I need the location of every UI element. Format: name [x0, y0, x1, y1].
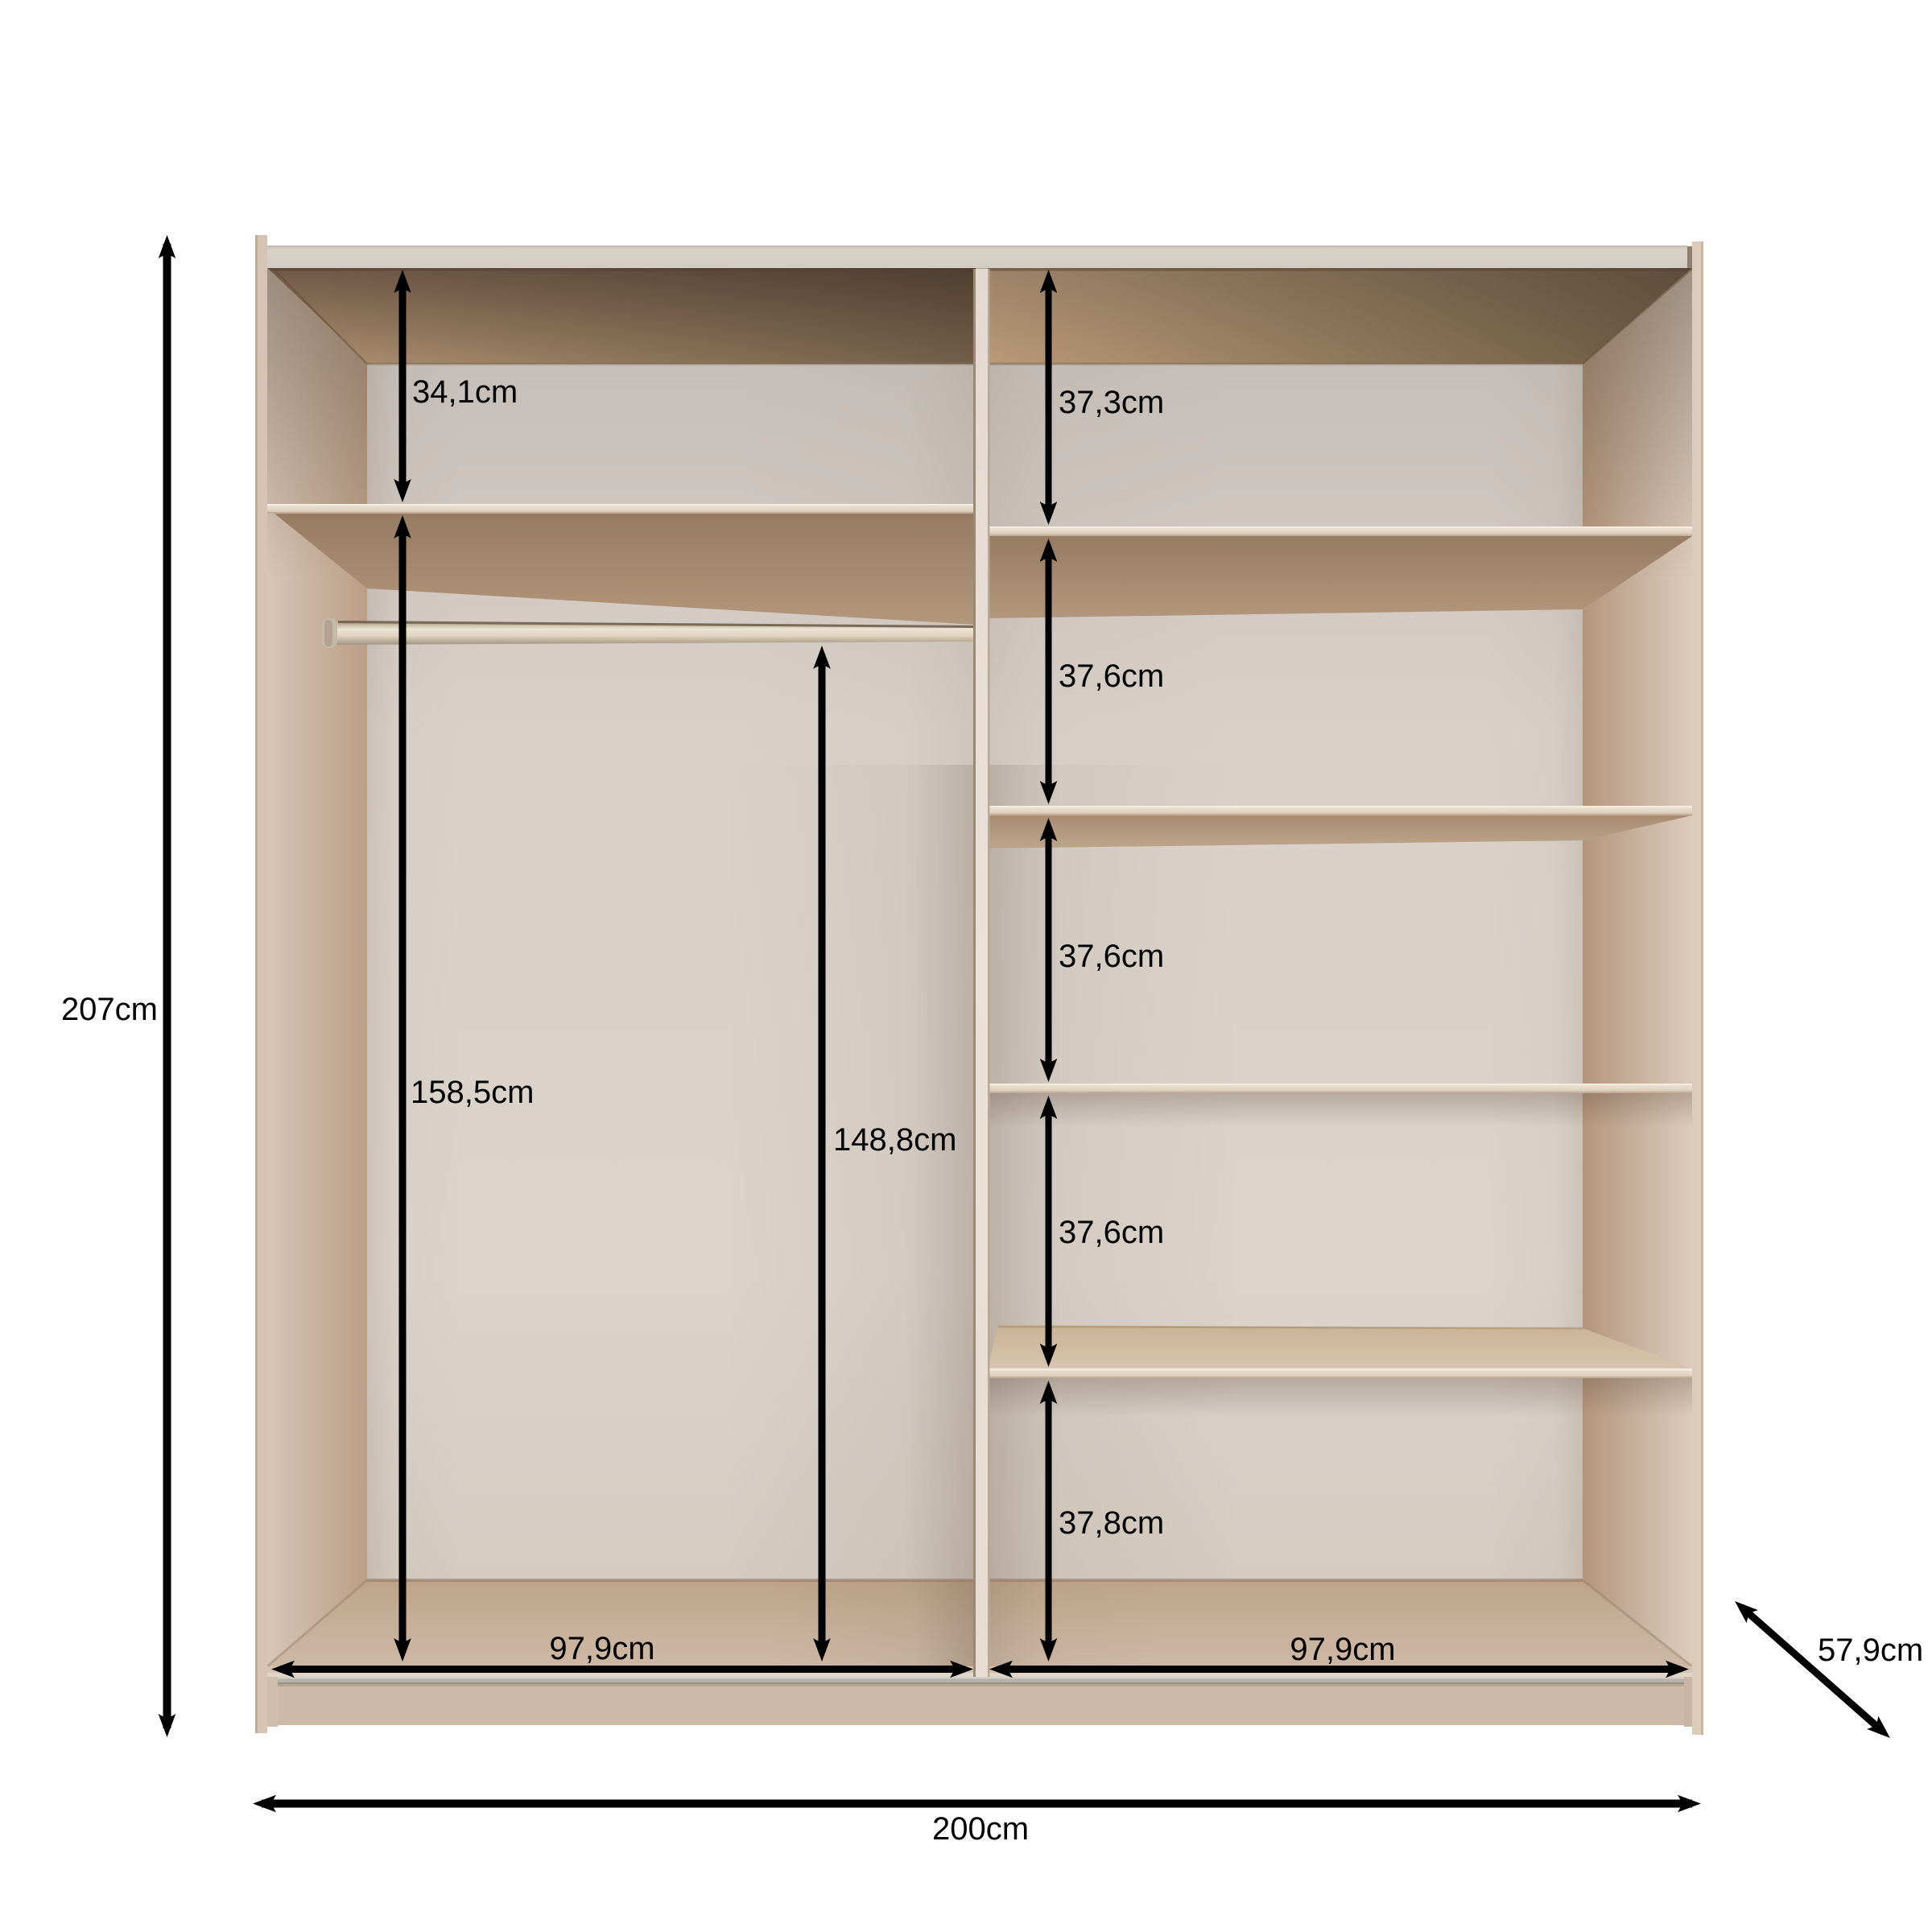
svg-text:37,3cm: 37,3cm — [1059, 385, 1164, 420]
svg-text:37,8cm: 37,8cm — [1059, 1505, 1164, 1541]
svg-text:200cm: 200cm — [932, 1811, 1029, 1847]
svg-text:57,9cm: 57,9cm — [1818, 1633, 1923, 1668]
svg-text:34,1cm: 34,1cm — [412, 374, 518, 410]
svg-text:37,6cm: 37,6cm — [1059, 939, 1164, 974]
svg-text:97,9cm: 97,9cm — [549, 1631, 654, 1666]
svg-text:148,8cm: 148,8cm — [833, 1122, 956, 1158]
svg-text:37,6cm: 37,6cm — [1059, 1215, 1164, 1250]
svg-text:158,5cm: 158,5cm — [411, 1075, 534, 1110]
svg-text:37,6cm: 37,6cm — [1059, 658, 1164, 694]
svg-text:97,9cm: 97,9cm — [1290, 1632, 1395, 1667]
svg-text:207cm: 207cm — [61, 992, 158, 1027]
